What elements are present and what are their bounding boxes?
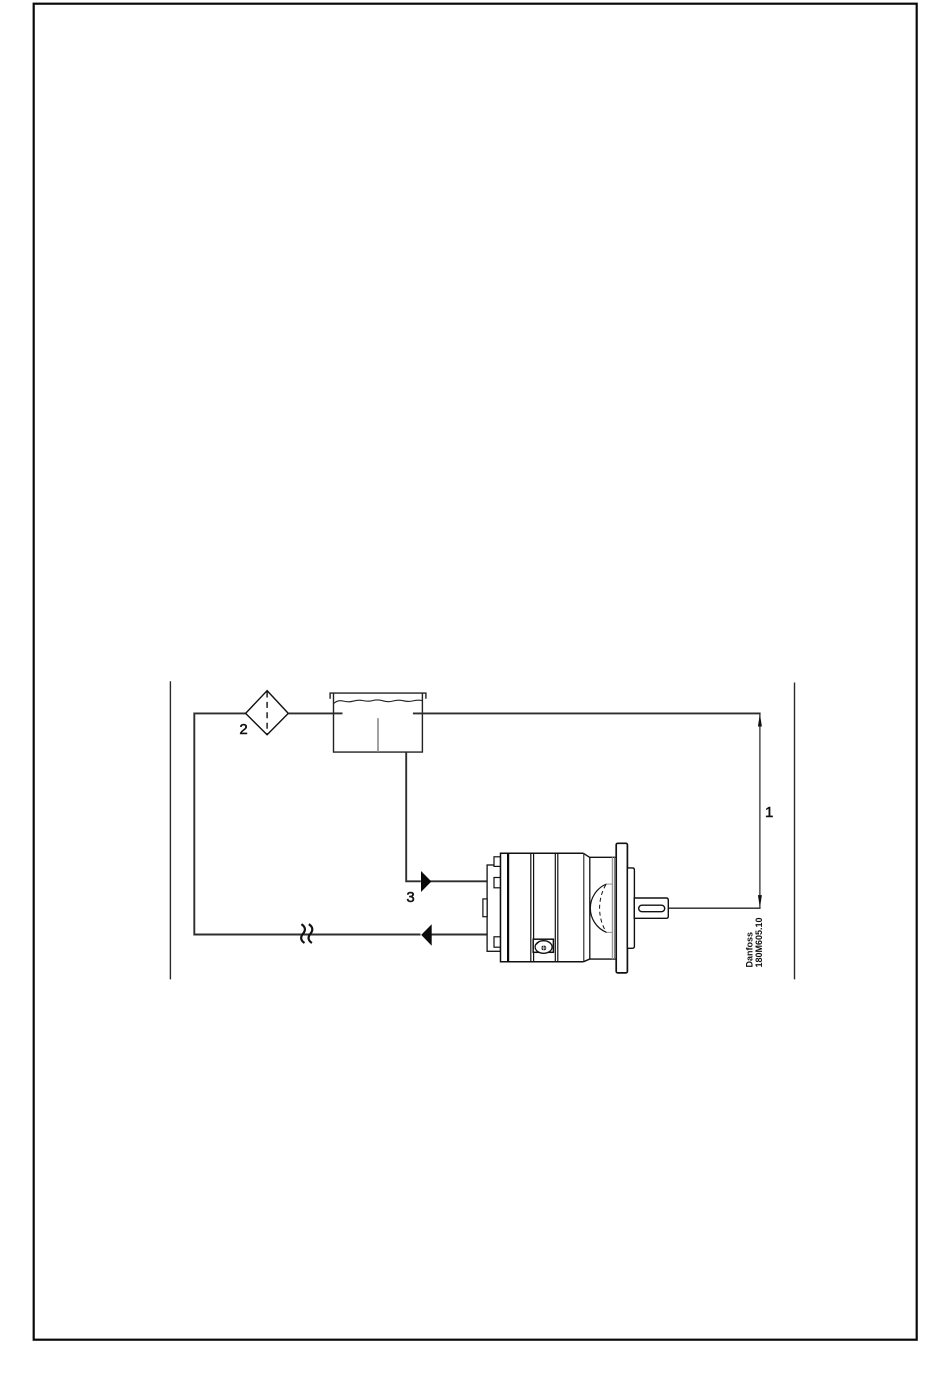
svg-text:3: 3 — [406, 889, 414, 906]
svg-text:1: 1 — [765, 804, 773, 821]
svg-text:2: 2 — [239, 721, 247, 738]
